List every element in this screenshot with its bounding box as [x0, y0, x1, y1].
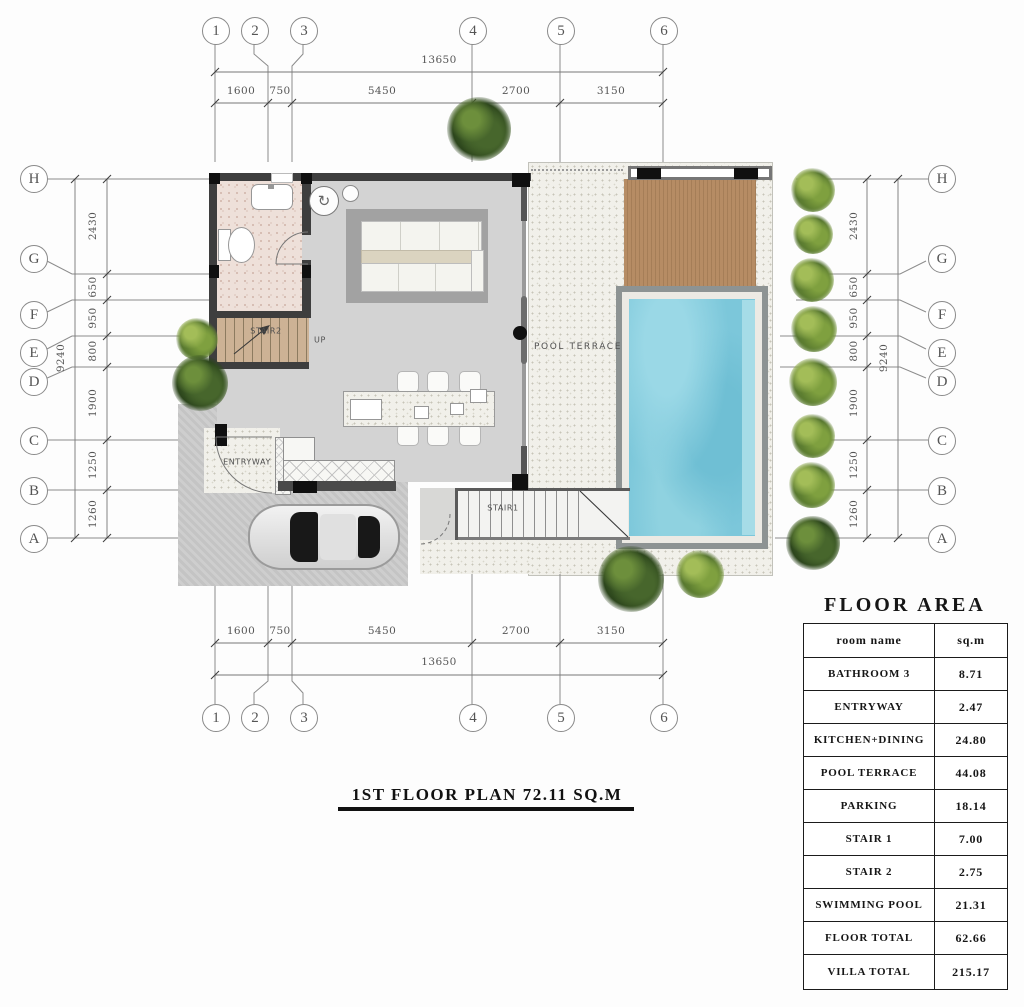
sink-faucet — [268, 184, 274, 189]
room-name-cell: VILLA TOTAL — [804, 955, 935, 989]
sqm-cell: 62.66 — [935, 922, 1007, 954]
grid-bubble-row: C — [20, 427, 48, 455]
car-rear-window — [358, 516, 380, 558]
column — [209, 265, 219, 278]
floor-area-title: FLOOR AREA — [824, 594, 986, 617]
stair1-flat — [580, 491, 628, 537]
grid-bubble-col: 6 — [650, 704, 678, 732]
column — [209, 173, 220, 184]
dim-segment: 800 — [848, 340, 860, 361]
dim-segment: 3150 — [597, 625, 625, 637]
sqm-cell: 44.08 — [935, 757, 1007, 789]
sqm-cell: 8.71 — [935, 658, 1007, 690]
sqm-header: sq.m — [935, 624, 1007, 657]
grid-bubble-row: B — [20, 477, 48, 505]
car — [248, 504, 400, 570]
dim-segment: 5450 — [368, 625, 396, 637]
dim-segment: 950 — [848, 307, 860, 328]
stair1-label: STAIR1 — [487, 504, 518, 513]
table-row: POOL TERRACE 44.08 — [804, 756, 1007, 789]
sqm-cell: 2.47 — [935, 691, 1007, 723]
up-label: UP — [314, 336, 326, 345]
bush — [793, 214, 833, 254]
dining-chair — [397, 371, 419, 393]
dryer-icon — [342, 185, 359, 202]
dim-overall-right: 9240 — [878, 344, 890, 372]
dim-segment: 1600 — [227, 625, 255, 637]
sqm-cell: 18.14 — [935, 790, 1007, 822]
table-row: VILLA TOTAL 215.17 — [804, 954, 1007, 989]
swimming-pool-water — [629, 299, 755, 536]
dim-segment: 2430 — [87, 212, 99, 240]
table-row: FLOOR TOTAL 62.66 — [804, 921, 1007, 954]
grid-bubble-col: 3 — [290, 704, 318, 732]
wooden-deck — [624, 179, 756, 287]
grid-bubble-col: 3 — [290, 17, 318, 45]
column — [293, 481, 317, 493]
column — [302, 265, 311, 278]
bush — [790, 258, 834, 302]
grid-bubble-row: A — [928, 525, 956, 553]
dim-segment: 950 — [87, 307, 99, 328]
bush — [676, 550, 724, 598]
grid-bubble-col: 4 — [459, 17, 487, 45]
entryway-label: ENTRYWAY — [223, 458, 271, 467]
stair1-bottom-edge — [455, 537, 630, 540]
island-item — [470, 389, 487, 403]
grid-bubble-col: 5 — [547, 17, 575, 45]
bathroom-bottom-wall — [209, 311, 311, 318]
grid-bubble-col: 1 — [202, 17, 230, 45]
island-item — [414, 406, 429, 419]
table-header-row: room name sq.m — [804, 624, 1007, 657]
terrace-dotted-edge — [531, 169, 623, 171]
pool-terrace-label: POOL TERRACE — [534, 342, 622, 352]
dim-segment: 1260 — [87, 500, 99, 528]
grid-bubble-row: F — [20, 301, 48, 329]
dim-segment: 1250 — [848, 451, 860, 479]
grid-bubble-col: 6 — [650, 17, 678, 45]
bush — [791, 414, 835, 458]
table-row: ENTRYWAY 2.47 — [804, 690, 1007, 723]
sqm-cell: 24.80 — [935, 724, 1007, 756]
room-name-cell: ENTRYWAY — [804, 691, 935, 723]
right-wall-segment — [521, 181, 527, 221]
grid-bubble-row: E — [20, 339, 48, 367]
bush — [172, 355, 228, 411]
dim-segment: 5450 — [368, 85, 396, 97]
plan-title: 1ST FLOOR PLAN 72.11 SQ.M — [352, 785, 623, 805]
floor-plan-canvas: ↻ — [0, 0, 1024, 1007]
car-roof — [320, 514, 356, 560]
grid-bubble-row: D — [928, 368, 956, 396]
grid-bubble-row: D — [20, 368, 48, 396]
dim-segment: 650 — [87, 276, 99, 297]
stair1-left-edge — [455, 488, 458, 540]
table-row: BATHROOM 3 8.71 — [804, 657, 1007, 690]
pool-shallow-strip — [742, 300, 755, 535]
dining-chair — [427, 424, 449, 446]
terrace-lower-strip — [420, 540, 530, 574]
room-name-cell: STAIR 1 — [804, 823, 935, 855]
sofa-front — [361, 263, 473, 292]
table-row: PARKING 18.14 — [804, 789, 1007, 822]
dining-chair — [427, 371, 449, 393]
round-column — [513, 326, 527, 340]
grid-bubble-col: 1 — [202, 704, 230, 732]
bush — [789, 358, 837, 406]
grid-bubble-row: E — [928, 339, 956, 367]
grid-bubble-row: F — [928, 301, 956, 329]
tree — [447, 97, 511, 161]
dining-chair — [459, 424, 481, 446]
stair1-top-edge — [455, 488, 630, 491]
top-wall — [209, 173, 531, 181]
room-name-cell: PARKING — [804, 790, 935, 822]
sofa-back — [361, 221, 482, 252]
grid-bubble-row: G — [928, 245, 956, 273]
tree — [598, 546, 664, 612]
dining-chair — [397, 424, 419, 446]
dim-segment: 800 — [87, 340, 99, 361]
entry-post — [215, 424, 227, 446]
island-item — [450, 403, 464, 415]
plan-title-underline — [338, 807, 634, 811]
grid-bubble-row: G — [20, 245, 48, 273]
corner-column — [512, 173, 530, 187]
fence-post — [637, 168, 661, 179]
grid-bubble-row: H — [20, 165, 48, 193]
dim-segment: 2700 — [502, 85, 530, 97]
grid-bubble-col: 5 — [547, 704, 575, 732]
grid-bubble-row: H — [928, 165, 956, 193]
grid-bubble-row: B — [928, 477, 956, 505]
dim-segment: 1600 — [227, 85, 255, 97]
window-gap — [271, 173, 293, 183]
dim-segment: 1250 — [87, 451, 99, 479]
table-row: STAIR 2 2.75 — [804, 855, 1007, 888]
bush — [176, 318, 218, 360]
room-name-cell: SWIMMING POOL — [804, 889, 935, 921]
bush — [791, 168, 835, 212]
sqm-cell: 7.00 — [935, 823, 1007, 855]
car-windshield — [290, 512, 318, 562]
dim-segment: 650 — [848, 276, 860, 297]
grid-bubble-col: 2 — [241, 17, 269, 45]
dim-segment: 2430 — [848, 212, 860, 240]
sqm-cell: 215.17 — [935, 955, 1007, 989]
dim-segment: 750 — [269, 85, 290, 97]
dim-segment: 1260 — [848, 500, 860, 528]
bush — [786, 516, 840, 570]
table-row: SWIMMING POOL 21.31 — [804, 888, 1007, 921]
room-name-cell: FLOOR TOTAL — [804, 922, 935, 954]
island-sink — [350, 399, 382, 420]
stair2-treads — [217, 318, 309, 362]
bush — [789, 462, 835, 508]
room-name-cell: POOL TERRACE — [804, 757, 935, 789]
washer-icon: ↻ — [309, 186, 339, 216]
room-name-cell: KITCHEN+DINING — [804, 724, 935, 756]
grid-bubble-row: A — [20, 525, 48, 553]
column — [301, 173, 312, 184]
sqm-cell: 21.31 — [935, 889, 1007, 921]
bush — [791, 306, 837, 352]
dim-segment: 1900 — [87, 389, 99, 417]
stair1-treads — [458, 491, 580, 537]
fence-post — [734, 168, 758, 179]
grid-bubble-col: 4 — [459, 704, 487, 732]
stair2-label: STAIR2 — [250, 327, 281, 336]
sqm-cell: 2.75 — [935, 856, 1007, 888]
floor-area-table: room name sq.m BATHROOM 3 8.71 ENTRYWAY … — [803, 623, 1008, 990]
grid-bubble-row: C — [928, 427, 956, 455]
stair-landing — [420, 488, 458, 540]
corner-column — [512, 474, 528, 490]
room-name-cell: BATHROOM 3 — [804, 658, 935, 690]
sofa-arm — [471, 250, 484, 292]
dim-overall-left: 9240 — [55, 344, 67, 372]
grid-bubble-col: 2 — [241, 704, 269, 732]
kitchen-counter-corner — [283, 437, 315, 462]
table-row: STAIR 1 7.00 — [804, 822, 1007, 855]
dim-segment: 3150 — [597, 85, 625, 97]
dim-segment: 1900 — [848, 389, 860, 417]
toilet-bowl — [228, 227, 255, 263]
dim-segment: 2700 — [502, 625, 530, 637]
dim-overall-bottom: 13650 — [421, 656, 456, 668]
dim-segment: 750 — [269, 625, 290, 637]
table-row: KITCHEN+DINING 24.80 — [804, 723, 1007, 756]
dim-overall-top: 13650 — [421, 54, 456, 66]
room-name-cell: STAIR 2 — [804, 856, 935, 888]
room-name-header: room name — [804, 624, 935, 657]
